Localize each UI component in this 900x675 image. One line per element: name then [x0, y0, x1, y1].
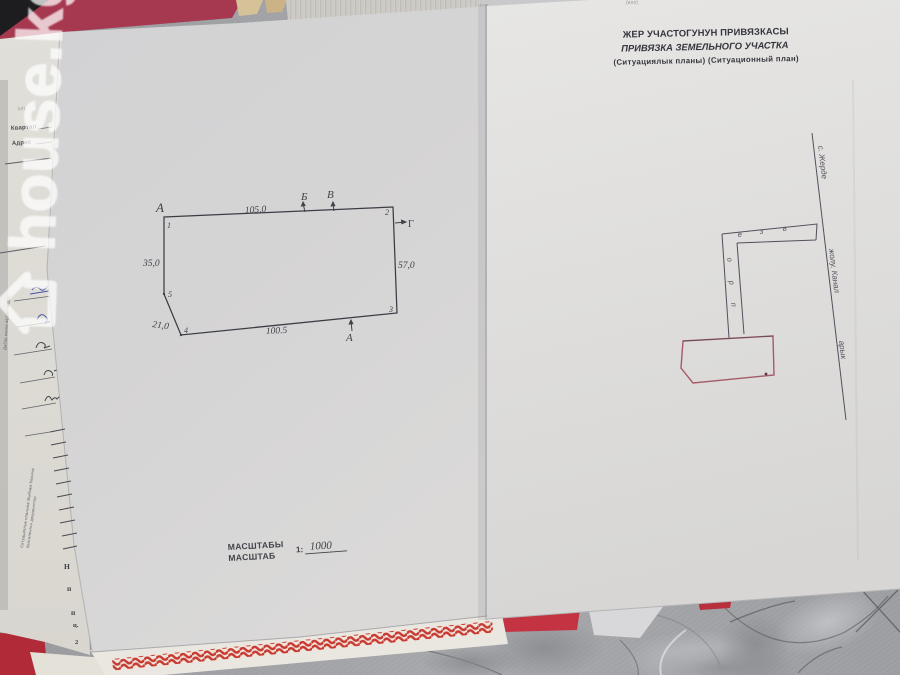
svg-text:house.kg: house.kg — [0, 0, 78, 252]
